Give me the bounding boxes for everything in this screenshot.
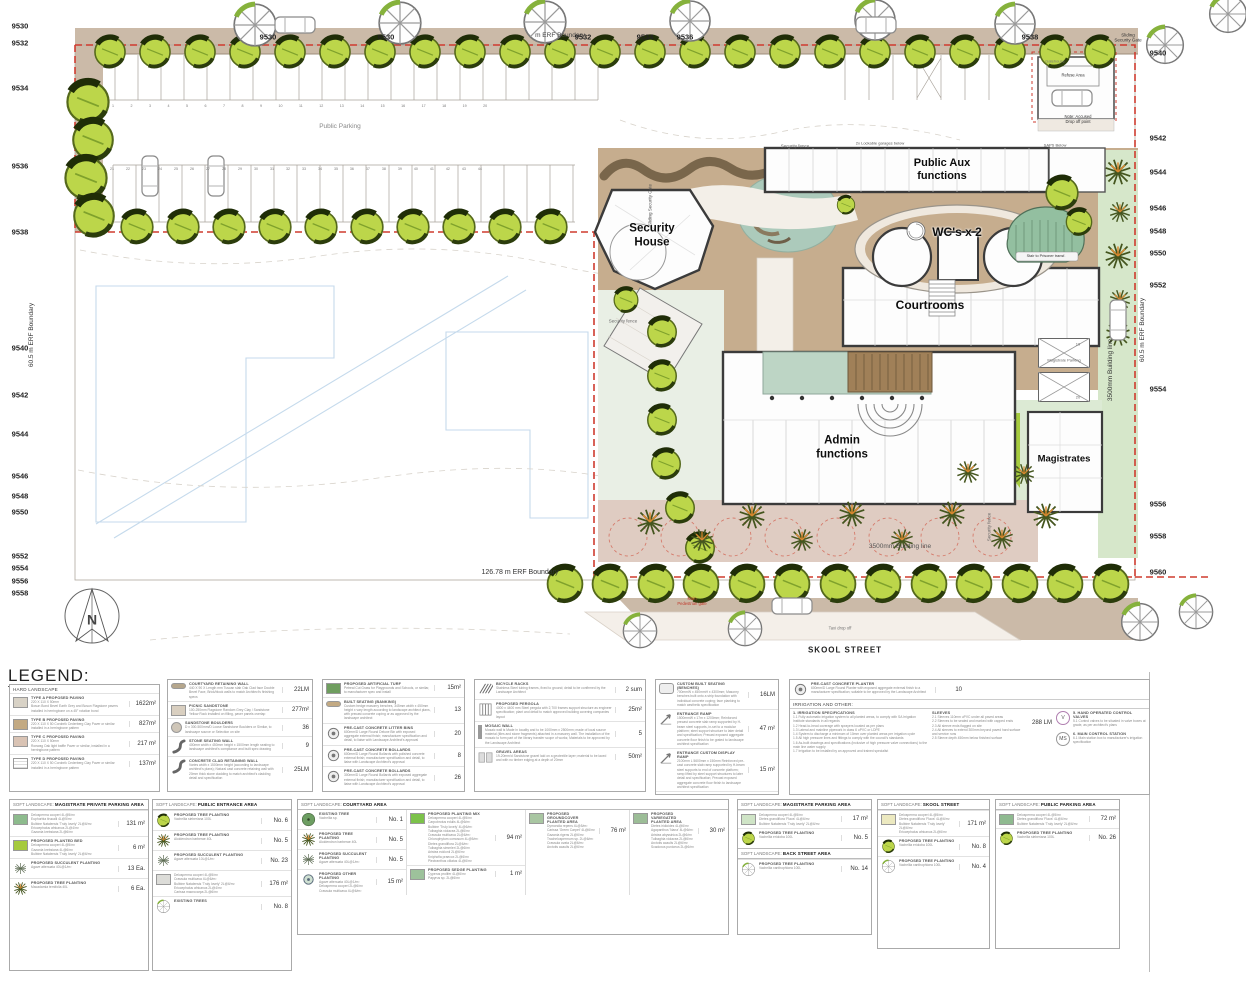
legend-item: PROPOSED TREE PLANTINGVachellia xanthoph… [878,856,989,876]
contour-label: 9558 [12,589,29,598]
tree-icon [741,831,756,846]
pot-plant-icon [301,872,316,887]
stall-numbers-row2: 21 22 23 24 25 26 27 28 29 30 31 32 33 3… [110,167,482,171]
item-value: 15 m² [748,767,775,773]
contour-label: 9546 [12,472,29,481]
contour-label: 9552 [12,552,29,561]
soft-prefix: SOFT LANDSCAPE: [156,802,197,807]
succulent-icon [301,852,316,867]
species-list: Cyperus prolifer 4L@6/m² Papyrus sp. 2L@… [428,872,492,881]
section-title: SKOOL STREET [923,802,959,807]
paving-swatch-icon [13,697,28,708]
paving-swatch-icon [13,758,28,769]
item-value: 20 [434,731,461,737]
contour-label: 9540 [1150,49,1167,58]
species-list: Delosperma cooperi 4L@5/m² Dietes grandi… [899,813,956,834]
site-plan-sheet: Security House Public Aux functions WC's… [0,0,1246,989]
item-name: PROPOSED VARIEGATED PLANTED AREA [651,812,695,824]
item-name: PROPOSED OTHER PLANTING [319,872,373,880]
legend-soft-public-entrance: SOFT LANDSCAPE: PUBLIC ENTRANCE AREA PRO… [152,799,292,971]
irrigation-columns: 1. IRRIGATION SPECIFICATIONS 1.1 Fully a… [790,709,1149,756]
legend-item: BICYCLE RACKSStainless Steel tubing fram… [475,680,645,699]
legend-item: PROPOSED TREE PLANTINGVachellia erioloba… [878,836,989,856]
tree-aloe-icon [301,832,316,847]
contour-label: 9558 [1150,532,1167,541]
item-value: 76 m² [599,828,626,834]
item-value: 94 m² [495,835,522,841]
item-value: 6 m² [118,845,145,851]
item-name: CUSTOM BUILT SEATING (BENCHES) [677,682,745,690]
sleeves-value: 288 LM [1030,720,1052,726]
item-value: 50m² [615,754,642,760]
legend-hard-box-c: PROPOSED ARTIFICIAL TURFPetreal Cut Gras… [322,679,465,792]
contour-label: 9530 [378,33,395,42]
legend-soft-magistrate-parking: SOFT LANDSCAPE: MAGISTRATE PARKING AREA … [737,799,872,935]
species-list: Vachellia sp. [319,816,373,820]
item-desc: 4000 x 4400 mm Steel pergola with 2,700 … [496,706,612,719]
succulent-icon [156,853,171,868]
tree-icon [13,881,28,896]
item-value: 1622m² [129,701,156,707]
legend-soft-courtyard: SOFT LANDSCAPE: COURTYARD AREA EXISTING … [297,799,729,935]
legend-item: PROPOSED PLANTING MIXDelosperma cooperi … [407,810,525,865]
irrigation-spec: 1. IRRIGATION SPECIFICATIONS 1.1 Fully a… [793,711,928,754]
species-list: Macadamia ternifolia 40L [31,885,115,889]
tree-aloe-icon [156,833,171,848]
legend-item: EXISTING TREESNo. 8 [153,896,291,916]
item-value: 13 [434,707,461,713]
item-desc: 400mm width x 450mm height x 1500mm leng… [189,743,279,752]
species-list: Vachellia sieberiana 100L [174,817,258,821]
contour-label: 9560 [1150,568,1167,577]
item-value: 10 [935,687,962,693]
item-desc: 220 X 110 X 50 Corobrik Cederberg Clay P… [31,722,126,731]
station-text: 6.1 Main station box to manufacturer's i… [1073,736,1146,745]
planting-swatch-icon [13,840,28,851]
contour-label: 9534 [637,33,654,42]
item-name: ARTISTIC STEEL SCREENWALL [677,794,745,795]
item-value: No. 6 [261,818,288,824]
ramp-icon [659,751,674,766]
boulder-icon [171,722,182,733]
bottom-road [585,598,1138,640]
species-list: Delosperma cooperi 4L@5/m² Euphorbia tir… [31,813,115,834]
tree-column-left [65,81,113,235]
contour-label: 9550 [1150,249,1167,258]
screenwall-icon [659,794,674,795]
item-value: 72 m² [1089,816,1116,822]
retaining-wall-icon [171,759,186,774]
main-station-icon: MS [1056,732,1070,746]
bench-icon [326,701,341,707]
legend-item: Delosperma cooperi 4L@5/m² Dietes grandi… [878,810,989,836]
item-value: No. 8 [261,904,288,910]
legend-item: Delosperma cooperi 4L@5/m² Dietes grandi… [996,810,1119,828]
legend-item: PROPOSED SUCCULENT PLANTINGAgave attenua… [153,850,291,870]
legend-hard-box-f: PRE-CAST CONCRETE PLANTER600mm/D Large R… [789,679,1150,795]
legend-item: ARTISTIC STEEL SCREENWALLL-Shaped panels… [656,791,778,795]
groundcover-swatch-icon [529,813,544,824]
contour-label: 9556 [12,577,29,586]
species-list: Delosperma cooperi 4L@5/m² Crassula mult… [174,873,258,894]
legend-item: TYPE D PROPOSED PAVING220 X 110 X 50 Cor… [10,754,159,772]
legend-item: Delosperma cooperi 4L@5/m² Dietes grandi… [738,810,871,828]
section-title: MAGISTRATE PARKING AREA [783,802,851,807]
soft-prefix: SOFT LANDSCAPE: [13,802,54,807]
pergola-icon [478,702,493,717]
legend-hard-box-e: CUSTOM BUILT SEATING (BENCHES)700mmW x 4… [655,679,779,795]
species-list: Dietes iridioides 4L@6/m² Agapanthus 'Na… [651,824,695,850]
succulent-icon [13,861,28,876]
item-desc: 600mm/D Large Round Deluxe Bin with expo… [344,730,431,743]
item-value: 15m² [434,685,461,691]
legend-item: TYPE C PROPOSED PAVING220 X 110 X 50mm R… [10,732,159,754]
legend-item: CUSTOM BUILT SEATING (BENCHES)700mmW x 4… [656,680,778,709]
legend-soft-public-parking: SOFT LANDSCAPE: PUBLIC PARKING AREA Delo… [995,799,1120,949]
irrigation-spec-text: 1.1 Fully automatic irrigation system to… [793,715,928,754]
legend-item: PROPOSED SUCCULENT PLANTINGAgave attenua… [10,858,148,878]
item-value: No. 26 [1089,835,1116,841]
bollard-icon [326,769,341,784]
contour-label: 9536 [677,33,694,42]
species-list: Delosperma cooperi 4L@5/m² Carpobrotus e… [428,816,492,863]
sleeves-column: SLEEVES 2.1 Sleeves 110mm uPVC under all… [932,711,1022,754]
contour-label: 9542 [1150,134,1167,143]
legend-item: PICNIC SANDSTONE100-250mm Flagstone Rand… [168,701,312,719]
irrigation-header: IRRIGATION AND OTHER: [790,699,1149,709]
item-desc: 100-250mm Flagstone Random Grey Clay / S… [189,708,279,717]
tree-icon [881,859,896,874]
species-list: Vachellia erioloba 100L [899,843,956,847]
contour-label: 9554 [1150,385,1167,394]
planting-swatch-icon [881,814,896,825]
tree-row-parking [121,211,567,243]
existing-tree-icon [156,899,171,914]
item-value: No. 14 [841,866,868,872]
contour-label: 9540 [12,344,29,353]
legend-item: PROPOSED ARTIFICIAL TURFPetreal Cut Gras… [323,680,464,697]
legend-item: EXISTING TREEVachellia sp.No. 1 [298,810,406,829]
item-name: PROPOSED GROUNDCOVER PLANTED AREA [547,812,596,824]
groundcover-swatch-icon [156,874,171,885]
item-value: 5 [615,731,642,737]
contour-label: 9548 [12,492,29,501]
item-value: 217 m² [129,741,156,747]
item-value: No. 5 [261,838,288,844]
item-value: 8 [434,753,461,759]
item-value: 277m² [282,707,309,713]
planting-swatch-icon [741,814,756,825]
contour-label: 9548 [1150,227,1167,236]
tree-icon [881,839,896,854]
item-value: 17 m² [841,816,868,822]
item-value: 15 m² [376,879,403,885]
bicycle-rack-icon [478,682,493,697]
valves-text: 5.1 Control valves to be situated in val… [1073,719,1146,728]
paving-swatch-icon [13,736,28,747]
legend-item: PROPOSED SEDGE PLANTINGCyperus prolifer … [407,865,525,883]
species-list: Delosperma cooperi 4L@5/m² Dietes grandi… [759,813,838,826]
sedge-swatch-icon [410,869,425,880]
item-desc: 700mmW x 450mmH x 4300mm; Masonry benche… [677,690,745,707]
item-value: No. 4 [959,864,986,870]
item-value: 827m² [129,721,156,727]
item-value: 30 m² [698,828,725,834]
legend-item: PRE-CAST CONCRETE BOLLARDS300mm/D Large … [323,766,464,788]
item-desc: 300mm/D Large Round Bollards with expose… [344,773,431,786]
item-desc: 220 X 110 X 50 Corobrik Cederberg Clay P… [31,761,126,770]
tree-icon [156,813,171,828]
item-value: No. 5 [376,837,403,843]
section-title: PUBLIC ENTRANCE AREA [198,802,257,807]
item-name: EXISTING TREES [174,899,258,903]
item-value: 171 m² [959,821,986,827]
item-value: 131 m² [118,821,145,827]
planting-swatch-icon [410,813,425,824]
legend-item: PROPOSED SUCCULENT PLANTINGAgave attenua… [298,849,406,869]
item-desc: 19-20mm/d Sandstone gravel laid on a geo… [496,754,612,763]
species-list: Vachellia xanthophloea 100L [759,866,838,870]
section-title: COURTYARD AREA [343,802,387,807]
planter-icon [793,682,808,697]
legend-soft-magistrate-private-parking: SOFT LANDSCAPE: MAGISTRATE PRIVATE PARKI… [9,799,149,971]
section-title: PUBLIC PARKING AREA [1041,802,1096,807]
legend-item: ENTRANCE CUSTOM DISPLAY RAMP2100mm L 560… [656,748,778,791]
item-value: No. 5 [841,835,868,841]
item-name: ENTRANCE CUSTOM DISPLAY RAMP [677,751,745,759]
turf-swatch-icon [326,683,341,694]
contour-label: 9530 [12,22,29,31]
species-list: Aloidendron barberae 40L [174,837,258,841]
item-desc: 2100mm L 5600mm x 150mm Reinforced pre-c… [677,759,745,789]
soft-prefix: SOFT LANDSCAPE: [301,802,342,807]
contour-label: 9536 [12,162,29,171]
item-value: 2 sum [615,687,642,693]
item-value: No. 8 [959,844,986,850]
legend-item: PROPOSED TREE PLANTINGMacadamia ternifol… [10,878,148,898]
item-value: 36 [282,725,309,731]
legend-item: ENTRANCE RAMP1500mmW x 17m x 1200mm; Rei… [656,709,778,748]
legend-hard-box-d: BICYCLE RACKSStainless Steel tubing fram… [474,679,646,792]
section-title: MAGISTRATE PRIVATE PARKING AREA [55,802,144,807]
legend-item: COURTYARD RETAINING WALL440 X 90 X Lengt… [168,680,312,701]
legend-item: PRE-CAST CONCRETE BOLLARDS600mm/D Large … [323,745,464,767]
item-value: 25m² [615,707,642,713]
contour-label: 9538 [1022,33,1039,42]
species-list: Delosperma cooperi 4L@5/m² Dietes grandi… [1017,813,1086,826]
contour-label: 9550 [12,508,29,517]
legend-item: PRE-CAST CONCRETE LITTER BINS600mm/D Lar… [323,723,464,745]
existing-tree-icon [301,812,316,827]
legend-item: PROPOSED TREE PLANTINGAloidendron barber… [153,830,291,850]
species-list: Agave attenuata 10L@1/m² [174,857,258,861]
section-title: BACK STREET AREA [783,851,831,856]
item-value: 13 Ea. [118,866,145,872]
species-list: Dymondia repens 4L@5/m² Carissa 'Green C… [547,824,596,850]
legend-soft-skool-street: SOFT LANDSCAPE: SKOOL STREET Delosperma … [877,799,990,949]
species-list: Delosperma cooperi 4L@5/m² Gazania krebs… [31,843,115,856]
item-desc: D x 300-500mm/D Loose Sandstone Boulders… [185,725,279,734]
contour-label: 9552 [1150,281,1167,290]
legend-item: PROPOSED TREE PLANTINGAloidendron barber… [298,829,406,849]
contour-label: 9532 [575,33,592,42]
legend-item: PROPOSED TREE PLANTINGVachellia sieberia… [996,828,1119,848]
item-desc: Mosaic wall is Made in locality and to b… [485,728,612,745]
valves-title: 5. HAND OPERATED CONTROL VALVES [1073,711,1146,719]
contour-label: 9556 [1150,500,1167,509]
legend-item: MOSAIC WALLMosaic wall is Made in locali… [475,721,645,747]
ramp-icon [659,712,674,727]
legend-item: PROPOSED PERGOLA4000 x 4400 mm Steel per… [475,699,645,721]
legend-item: TYPE B PROPOSED PAVING220 X 110 X 50 Cor… [10,715,159,733]
species-list: Vachellia sieberiana 100L [1017,835,1086,839]
tree-row-bottom [548,567,1129,602]
legend-hard-box-b: COURTYARD RETAINING WALL440 X 90 X Lengt… [167,679,313,792]
future-phase-outlines [96,276,588,538]
amphitheatre-stage [848,352,932,392]
contour-label: 9544 [1150,168,1167,177]
species-list: Vachellia xanthophloea 100L [899,863,956,867]
stall-numbers-row1: 1 2 3 4 5 6 7 8 9 10 11 12 13 14 15 16 1… [112,104,487,108]
bench-icon [659,683,674,694]
legend-item: PROPOSED TREE PLANTINGVachellia erioloba… [738,828,871,848]
sleeves-text: 2.1 Sleeves 110mm uPVC under all paved a… [932,715,1022,741]
item-desc: Stainless Steel tubing frames, fixed to … [496,686,612,695]
sandstone-swatch-icon [171,705,186,716]
mosaic-wall-icon [478,725,482,739]
item-value: No. 5 [376,857,403,863]
item-desc: Custom hedge masonry benches, 345mm widt… [344,704,431,721]
item-desc: 440 X 90 X Length mm Tuscan slab Oak Cla… [189,686,279,699]
litter-bin-icon [326,726,341,741]
species-list: Agave attenuata 40L@1/m² [319,860,373,864]
item-value: No. 23 [261,858,288,864]
item-name: PROPOSED TREE PLANTING [319,832,373,840]
legend-item: STONE SEATING WALL400mm width x 450mm he… [168,736,312,756]
tree-icon [999,831,1014,846]
item-value: 6 Ea. [118,886,145,892]
legend-item: GRAVEL AREAS19-20mm/d Sandstone gravel l… [475,747,645,767]
legend-item: PROPOSED TREE PLANTINGVachellia sieberia… [153,810,291,830]
item-value: 22LM [282,687,309,693]
contour-label: 9538 [12,228,29,237]
valve-icon: V [1056,711,1070,725]
contour-label: 9542 [12,391,29,400]
planting-swatch-icon [999,814,1014,825]
public-aux-building [765,148,1049,192]
item-value: 137m² [129,761,156,767]
item-desc: 220 X 110 X 50mm Roewag Oak light baffle… [31,739,126,752]
paving-swatch-icon [13,719,28,730]
site-plan-drawing [0,0,1246,662]
valves-column: V 5. HAND OPERATED CONTROL VALVES5.1 Con… [1056,711,1146,754]
variegated-swatch-icon [633,813,648,824]
legend-item: PROPOSED TREE PLANTINGVachellia xanthoph… [738,859,871,879]
contour-label: 9530 [260,33,277,42]
contour-label: 9546 [1150,204,1167,213]
legend-item: TYPE A PROPOSED PAVING220 X 110 X 50mm B… [10,693,159,715]
item-desc: 600mm/D Large Round Bollards with polish… [344,752,431,765]
item-name: PROPOSED SUCCULENT PLANTING [319,852,373,860]
item-desc: 220 X 110 X 50mm Bosun Bond Bevel Earth … [31,700,126,713]
contour-label: 9532 [12,39,29,48]
species-list: Aloidendron barberae 40L [319,840,373,844]
bollard-icon [326,748,341,763]
soft-prefix: SOFT LANDSCAPE: [741,851,782,856]
soft-prefix: SOFT LANDSCAPE: [881,802,922,807]
soft-prefix: SOFT LANDSCAPE: [999,802,1040,807]
tree-icon [741,862,756,877]
legend-item: Delosperma cooperi 4L@5/m² Crassula mult… [153,870,291,896]
species-list: Vachellia erioloba 100L [759,835,838,839]
legend-item: BUILT SEATING (BANKING)Custom hedge maso… [323,697,464,723]
legend-item: Delosperma cooperi 4L@5/m² Euphorbia tir… [10,810,148,836]
item-desc: Petreal Cut Grass for Playgrounds and Sc… [344,686,431,695]
item-value: 16LM [748,692,775,698]
hard-landscape-header: HARD LANDSCAPE [10,685,159,693]
wall-icon [171,683,186,689]
item-value: 1 m² [495,871,522,877]
contour-label: 9544 [12,430,29,439]
legend-item: SANDSTONE BOULDERSD x 300-500mm/D Loose … [168,718,312,736]
item-value: 26 [434,775,461,781]
species-list: Agave attenuata 40L@1/m² [31,865,115,869]
legend-item: PROPOSED GROUNDCOVER PLANTED AREADymondi… [526,810,629,852]
contour-label: 9554 [12,564,29,573]
item-value: 47 m² [748,726,775,732]
soft-prefix: SOFT LANDSCAPE: [741,802,782,807]
legend-item: PRE-CAST CONCRETE PLANTER600mm/D Large R… [790,680,965,699]
gravel-icon [478,750,493,765]
item-desc: 1500mmW x 17m x 1200mm; Reinforced preca… [677,716,745,746]
legend-hard-box-a: HARD LANDSCAPE TYPE A PROPOSED PAVING220… [9,684,160,792]
legend-item: PROPOSED VARIEGATED PLANTED AREADietes i… [630,810,728,852]
contour-label: 9534 [12,84,29,93]
legend-item: PROPOSED OTHER PLANTINGAgave attenuata 4… [298,869,406,895]
item-value: 9 [282,743,309,749]
planting-swatch-icon [13,814,28,825]
north-compass-icon [65,589,119,643]
seating-wall-icon [171,739,186,754]
species-list: Agave attenuata 40L@1/m² Delosperma coop… [319,880,373,893]
legend-item: PROPOSED PLANTED BEDDelosperma cooperi 4… [10,836,148,858]
legend-item: CONCRETE CLAD RETAINING WALLVaries width… [168,756,312,782]
item-value: No. 1 [376,817,403,823]
item-value: 25LM [282,767,309,773]
item-value: 176 m² [261,881,288,887]
item-desc: Varies width x 1500mm height (according … [189,763,279,780]
item-desc: 600mm/D Large Round Planter with exposed… [811,686,932,695]
